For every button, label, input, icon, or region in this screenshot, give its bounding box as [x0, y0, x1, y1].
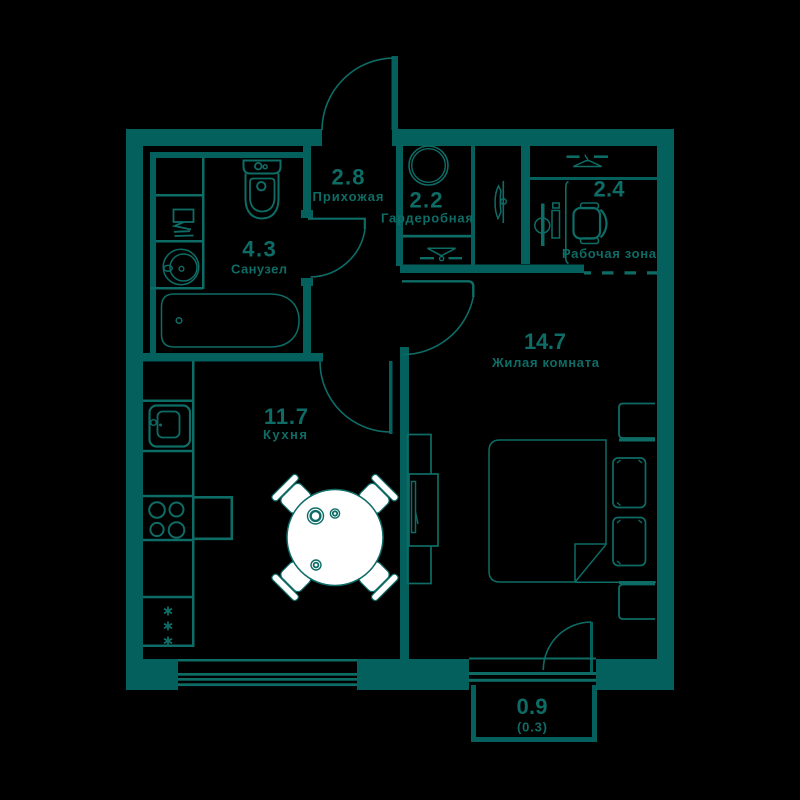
svg-text:4.3: 4.3	[242, 237, 276, 262]
svg-text:0.9: 0.9	[517, 694, 548, 719]
svg-text:2.8: 2.8	[332, 165, 365, 190]
svg-text:11.7: 11.7	[264, 404, 308, 429]
svg-text:Жилая комната: Жилая комната	[491, 355, 600, 370]
svg-text:2.2: 2.2	[410, 187, 443, 212]
svg-text:Рабочая зона: Рабочая зона	[562, 246, 657, 261]
svg-text:(0.3): (0.3)	[517, 720, 547, 735]
svg-text:Кухня: Кухня	[263, 427, 307, 442]
svg-text:Прихожая: Прихожая	[313, 189, 384, 204]
svg-text:Санузел: Санузел	[231, 262, 287, 277]
svg-text:14.7: 14.7	[524, 329, 566, 354]
svg-text:Гардеробная: Гардеробная	[381, 210, 473, 225]
svg-text:2.4: 2.4	[594, 177, 626, 202]
